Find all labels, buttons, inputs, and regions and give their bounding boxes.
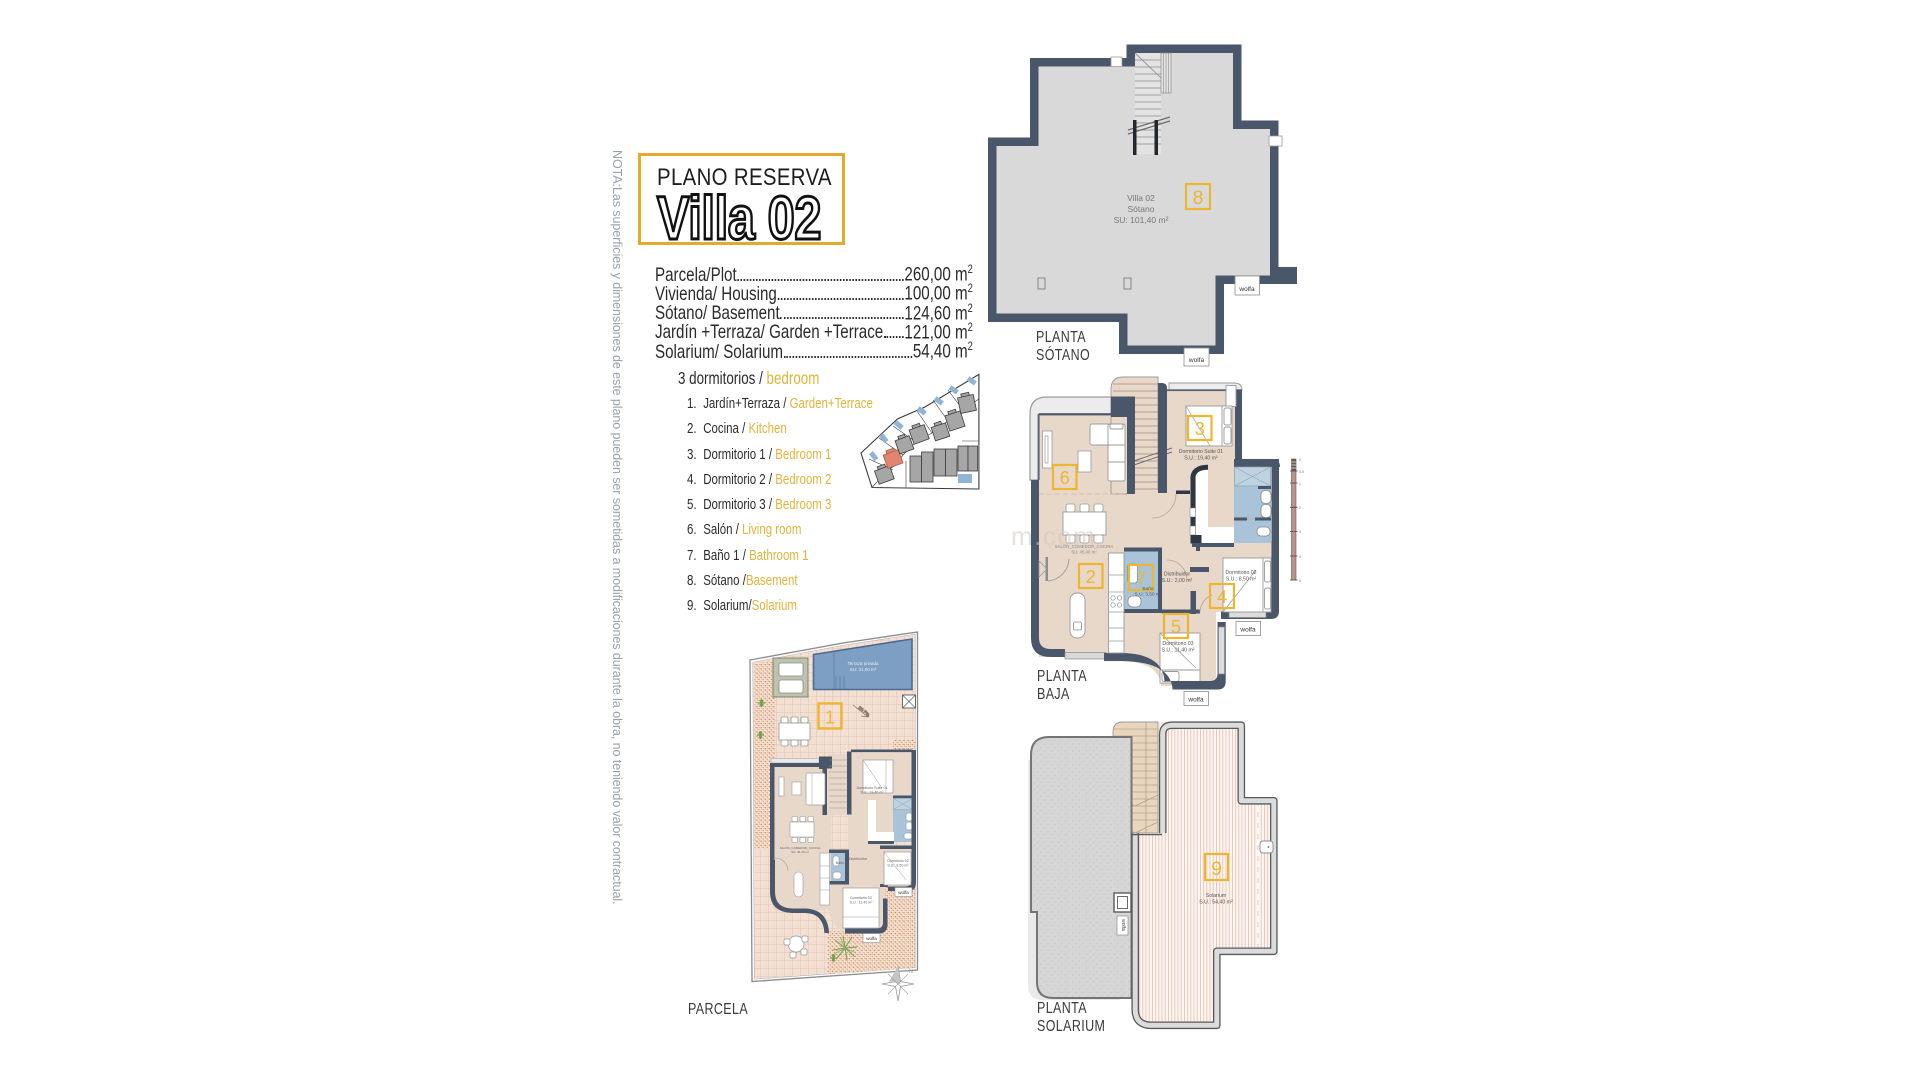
svg-text:7: 7 <box>1136 569 1146 589</box>
svg-text:3: 3 <box>1195 419 1205 439</box>
svg-text:S.U.: 54,40 m²: S.U.: 54,40 m² <box>1199 900 1233 906</box>
svg-text:Terraza privada: Terraza privada <box>847 661 879 666</box>
svg-text:9: 9 <box>1211 859 1222 880</box>
svg-text:Dormitorio Suite 01: Dormitorio Suite 01 <box>857 786 888 790</box>
svg-text:N: N <box>909 969 913 975</box>
svg-text:2: 2 <box>1086 567 1096 587</box>
svg-text:3: 3 <box>1299 530 1301 534</box>
svg-text:S.U.: 11,40 m²: S.U.: 11,40 m² <box>850 901 874 905</box>
svg-text:Dormitorio 02: Dormitorio 02 <box>887 859 909 863</box>
svg-text:2: 2 <box>1299 506 1301 510</box>
svg-text:5: 5 <box>1299 579 1301 583</box>
svg-text:Villa 02: Villa 02 <box>1127 193 1155 203</box>
svg-text:wolfa: wolfa <box>866 936 877 941</box>
svg-text:6: 6 <box>1060 468 1070 488</box>
svg-text:wolfa: wolfa <box>1187 697 1204 704</box>
svg-text:Sótano: Sótano <box>1128 204 1155 214</box>
svg-text:wolfa: wolfa <box>898 890 909 895</box>
svg-text:S.U.: 8,50 m²: S.U.: 8,50 m² <box>1226 577 1257 583</box>
svg-text:1: 1 <box>825 708 835 728</box>
svg-text:S.U.: 11,40 m²: S.U.: 11,40 m² <box>1161 648 1194 654</box>
svg-text:5: 5 <box>1171 617 1181 637</box>
svg-text:S.U.: 19,40 m²: S.U.: 19,40 m² <box>1184 456 1218 462</box>
svg-text:Baño: Baño <box>836 861 844 865</box>
svg-text:0.5: 0.5 <box>1299 470 1304 474</box>
svg-text:wolfa: wolfa <box>1120 919 1126 931</box>
svg-text:Dormitorio Suite 01: Dormitorio Suite 01 <box>1179 449 1224 455</box>
svg-text:Solarium: Solarium <box>1206 893 1226 899</box>
svg-text:0: 0 <box>1299 458 1301 462</box>
svg-text:wolfa: wolfa <box>1238 286 1255 293</box>
svg-text:1: 1 <box>1299 482 1301 486</box>
svg-text:Distribuidor: Distribuidor <box>1164 572 1191 578</box>
svg-text:8: 8 <box>1193 188 1204 209</box>
svg-text:wolfa: wolfa <box>1239 627 1256 634</box>
svg-text:Baño: Baño <box>1142 586 1154 592</box>
svg-text:Dormitorio 03: Dormitorio 03 <box>850 896 872 900</box>
svg-text:S.U.: 8,50 m²: S.U.: 8,50 m² <box>887 864 909 868</box>
svg-text:S.U.: 2,00 m²: S.U.: 2,00 m² <box>1162 578 1193 584</box>
svg-text:S.U: 3,50 m²: S.U: 3,50 m² <box>1135 592 1162 598</box>
svg-text:4: 4 <box>1299 555 1301 559</box>
svg-text:4: 4 <box>1217 587 1227 607</box>
svg-text:SU: 101,40 m²: SU: 101,40 m² <box>1114 215 1169 225</box>
svg-text:SU: 21,00 m²: SU: 21,00 m² <box>850 667 877 672</box>
svg-text:Distribuidor: Distribuidor <box>849 857 868 861</box>
svg-text:S.U.: 19,40 m²: S.U.: 19,40 m² <box>860 791 884 795</box>
svg-text:Dormitorio 03: Dormitorio 03 <box>1162 641 1193 647</box>
svg-text:wolfa: wolfa <box>1188 357 1205 364</box>
svg-text:SU: 45,40 m²: SU: 45,40 m² <box>791 850 809 854</box>
svg-text:Dormitorio 02: Dormitorio 02 <box>1225 570 1256 576</box>
